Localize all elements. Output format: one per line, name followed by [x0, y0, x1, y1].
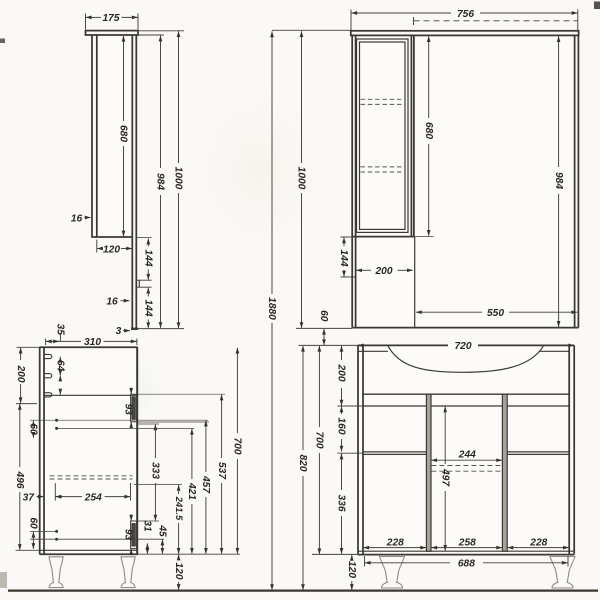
svg-text:700: 700 — [314, 432, 325, 449]
svg-text:200: 200 — [375, 266, 393, 277]
svg-text:64: 64 — [55, 360, 66, 372]
svg-text:144: 144 — [338, 250, 349, 267]
svg-text:16: 16 — [71, 213, 83, 224]
svg-text:120: 120 — [346, 561, 357, 578]
svg-text:60: 60 — [28, 423, 39, 435]
svg-text:984: 984 — [155, 173, 166, 190]
svg-text:45: 45 — [157, 524, 168, 537]
svg-text:258: 258 — [458, 538, 476, 549]
svg-text:93: 93 — [123, 529, 134, 541]
svg-text:31: 31 — [142, 520, 153, 532]
svg-text:310: 310 — [84, 337, 101, 348]
svg-text:60: 60 — [318, 310, 329, 322]
svg-text:720: 720 — [455, 341, 472, 352]
svg-text:984: 984 — [553, 172, 564, 189]
svg-text:200: 200 — [336, 364, 347, 382]
svg-text:1880: 1880 — [266, 297, 277, 320]
svg-text:254: 254 — [84, 492, 102, 503]
svg-text:144: 144 — [143, 250, 154, 267]
svg-text:497: 497 — [439, 468, 450, 487]
svg-text:700: 700 — [232, 438, 243, 455]
svg-text:16: 16 — [106, 297, 118, 308]
svg-text:336: 336 — [336, 495, 347, 512]
svg-text:37: 37 — [23, 492, 36, 503]
svg-text:60: 60 — [28, 517, 39, 529]
svg-text:228: 228 — [529, 538, 547, 549]
svg-text:537: 537 — [216, 462, 227, 480]
svg-text:120: 120 — [173, 563, 184, 580]
svg-text:680: 680 — [118, 125, 129, 142]
svg-text:688: 688 — [458, 559, 475, 570]
svg-text:333: 333 — [150, 462, 161, 479]
svg-text:496: 496 — [14, 471, 25, 489]
svg-text:457: 457 — [200, 475, 211, 494]
svg-text:1000: 1000 — [173, 167, 184, 190]
svg-text:35: 35 — [54, 324, 65, 336]
svg-text:820: 820 — [297, 455, 308, 472]
svg-text:175: 175 — [103, 13, 120, 24]
svg-text:200: 200 — [15, 365, 26, 383]
svg-text:241.5: 241.5 — [174, 496, 185, 521]
svg-text:228: 228 — [386, 538, 404, 549]
svg-text:1000: 1000 — [296, 167, 307, 190]
svg-text:93: 93 — [123, 404, 134, 416]
svg-text:680: 680 — [423, 122, 434, 139]
svg-text:244: 244 — [458, 450, 476, 461]
svg-text:120: 120 — [103, 244, 120, 255]
svg-text:550: 550 — [487, 308, 504, 319]
svg-text:160: 160 — [336, 418, 347, 435]
svg-text:3: 3 — [116, 326, 122, 337]
svg-text:421: 421 — [186, 482, 197, 500]
svg-text:144: 144 — [143, 300, 154, 317]
svg-text:756: 756 — [457, 9, 474, 20]
